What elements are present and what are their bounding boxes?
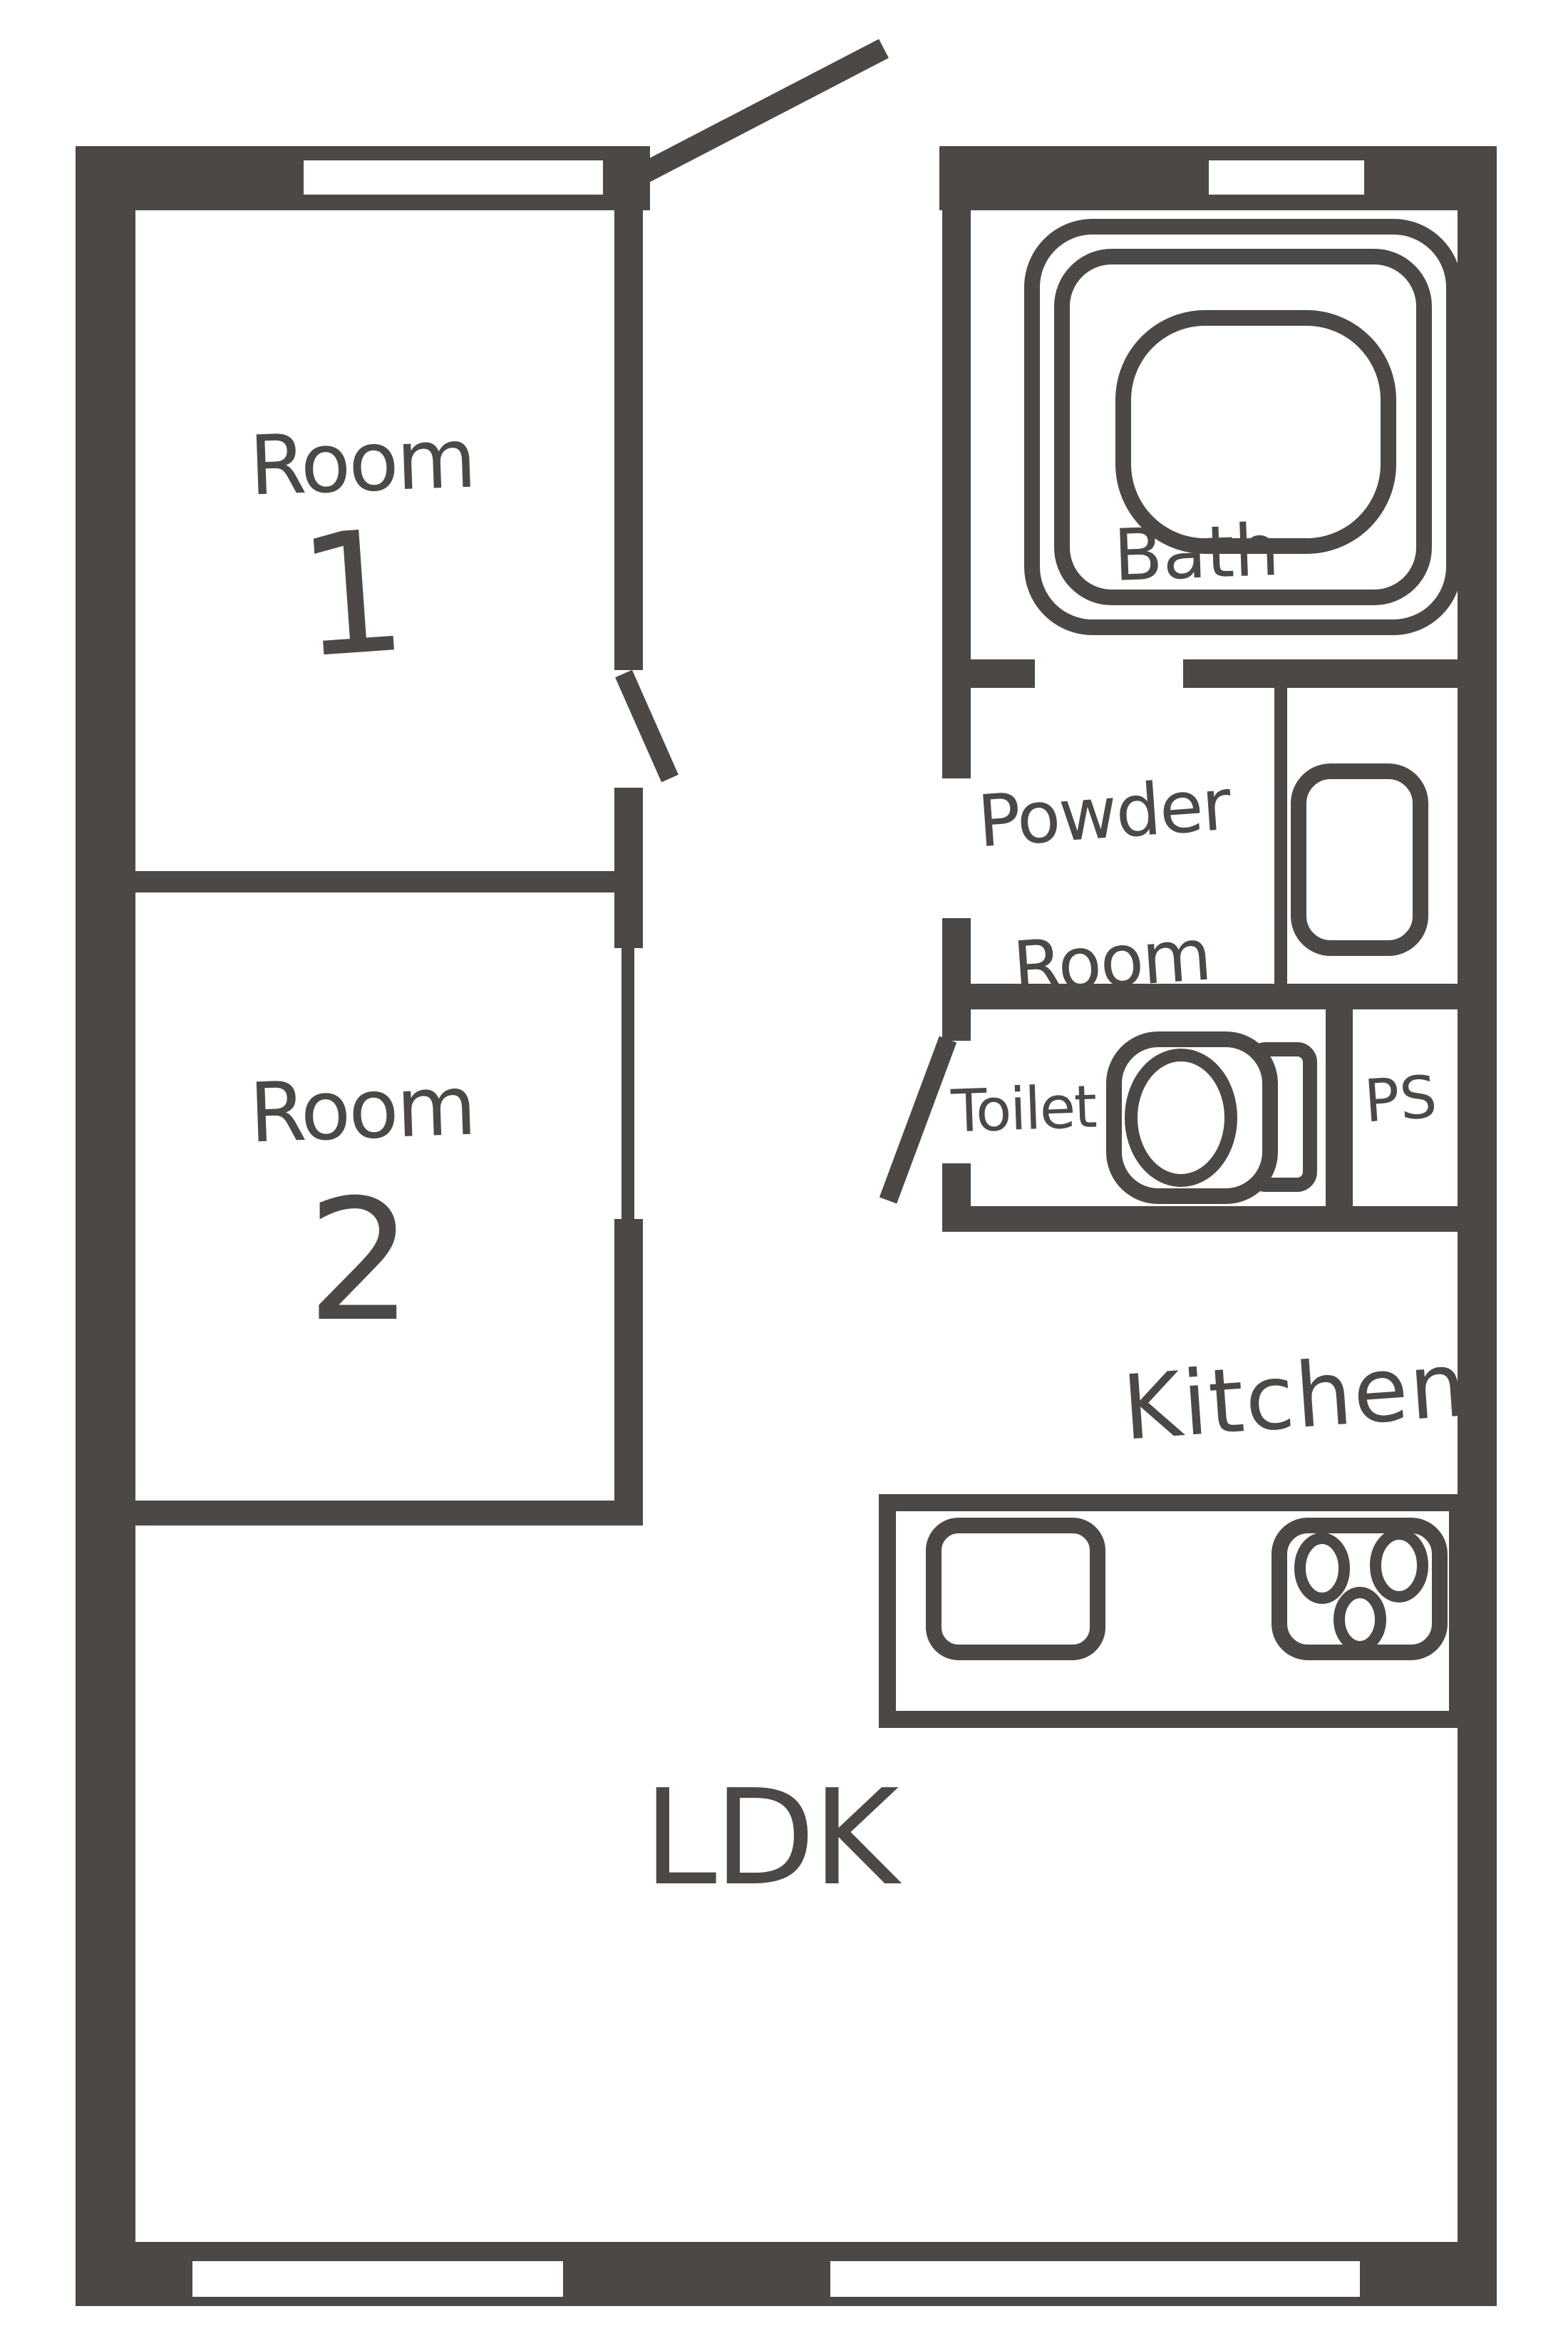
wall-top-right-a <box>939 146 1209 210</box>
toilet-label: Toilet <box>949 1073 1098 1146</box>
ldk-label: LDK <box>644 1761 903 1915</box>
wall-ps-divider <box>1326 1009 1353 1206</box>
wall-top-left-b <box>603 146 650 210</box>
wall-rooms-divider <box>135 871 643 892</box>
room2-label: Room <box>248 1059 476 1162</box>
wall-outer-left <box>76 146 135 2306</box>
room1-door-leaf <box>624 674 670 778</box>
wall-bath-divider-left <box>942 659 1035 688</box>
wall-corridor-left-1 <box>614 210 643 670</box>
floor-plan: Room1Room2BathPowderRoomToiletPSKitchenL… <box>0 0 1568 2341</box>
toilet-door-leaf <box>888 1039 948 1200</box>
wall-outer-right <box>1458 146 1497 2306</box>
doors-layer <box>624 48 948 1200</box>
wall-corridor-left-2 <box>614 788 643 948</box>
entry-door-leaf <box>645 48 884 173</box>
bath-label: Bath <box>1113 508 1281 597</box>
wall-room2-bottom <box>135 1501 643 1525</box>
wall-bottom-window2-top <box>830 2242 1360 2261</box>
wall-toilet-bottom <box>942 1206 1458 1232</box>
floor-plan-svg: Room1Room2BathPowderRoomToiletPSKitchenL… <box>0 0 1568 2341</box>
wall-sink-divider <box>1274 688 1287 984</box>
wall-corridor-right-2 <box>942 918 971 1041</box>
wall-room2-sliding-door <box>621 948 634 1219</box>
wall-bottom-window1-top <box>192 2242 563 2261</box>
wall-bottom-c <box>1360 2242 1497 2306</box>
room1-number: 1 <box>292 494 412 696</box>
kitchen-counter <box>887 1503 1458 1719</box>
ps-label: PS <box>1362 1064 1439 1136</box>
wall-bottom-b <box>563 2242 830 2306</box>
wall-top-left-a <box>76 146 304 210</box>
powder-label-line2: Room <box>1010 913 1212 1010</box>
wall-corridor-right-3 <box>942 1163 971 1206</box>
wall-top-right-window-bottom <box>1209 195 1364 210</box>
wall-corridor-right-1 <box>942 210 971 778</box>
kitchen-label: Kitchen <box>1120 1333 1471 1460</box>
wall-bottom-window1-bottom <box>192 2297 563 2306</box>
wall-bottom-a <box>76 2242 192 2306</box>
wall-top-right-window-top <box>1209 146 1364 160</box>
wall-bottom-window2-bottom <box>830 2297 1360 2306</box>
wall-bath-divider-right <box>1183 659 1458 688</box>
powder-sink <box>1299 771 1420 948</box>
wall-top-left-window-bottom <box>304 195 603 210</box>
wall-top-left-window-top <box>304 146 603 160</box>
powder-label-line1: Powder <box>975 763 1234 864</box>
wall-corridor-left-3 <box>614 1219 643 1501</box>
room2-number: 2 <box>306 1164 413 1359</box>
